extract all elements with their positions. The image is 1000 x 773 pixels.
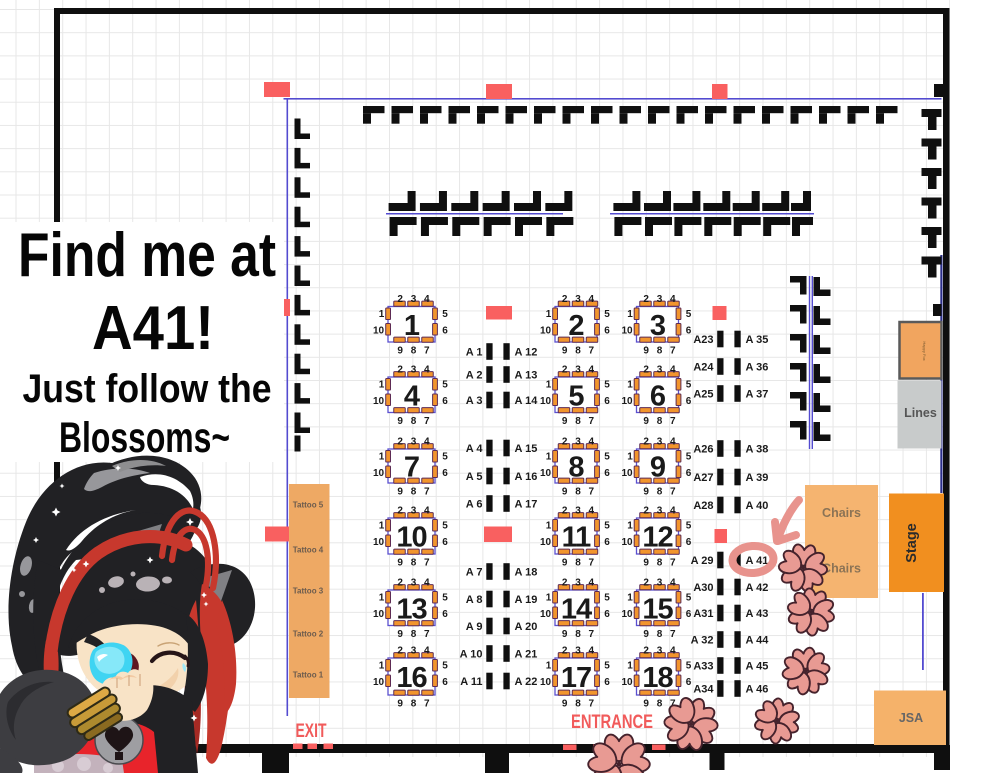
svg-text:9: 9 <box>643 416 649 427</box>
svg-text:A24: A24 <box>693 362 714 374</box>
svg-text:8: 8 <box>411 558 417 569</box>
svg-text:6: 6 <box>442 537 448 548</box>
svg-text:5: 5 <box>604 521 610 532</box>
svg-text:A25: A25 <box>693 389 713 401</box>
svg-text:2: 2 <box>562 578 568 589</box>
svg-text:2: 2 <box>562 506 568 517</box>
svg-text:4: 4 <box>424 506 430 517</box>
svg-text:8: 8 <box>575 629 581 640</box>
svg-text:7: 7 <box>589 699 595 710</box>
svg-text:2: 2 <box>643 506 649 517</box>
svg-text:3: 3 <box>575 578 581 589</box>
svg-text:4: 4 <box>589 506 595 517</box>
svg-text:1: 1 <box>546 593 552 604</box>
svg-text:4: 4 <box>670 506 676 517</box>
svg-text:10: 10 <box>621 468 633 479</box>
svg-text:3: 3 <box>575 437 581 448</box>
svg-text:6: 6 <box>442 396 448 407</box>
svg-text:17: 17 <box>561 662 591 694</box>
svg-text:A31: A31 <box>693 608 713 620</box>
svg-text:A28: A28 <box>693 500 713 512</box>
svg-text:6: 6 <box>686 677 692 688</box>
svg-text:A 2: A 2 <box>466 370 483 382</box>
svg-text:10: 10 <box>396 522 426 554</box>
svg-text:A 5: A 5 <box>466 471 483 483</box>
svg-text:9: 9 <box>397 487 403 498</box>
svg-text:3: 3 <box>657 365 663 376</box>
svg-text:1: 1 <box>379 661 385 672</box>
svg-text:2: 2 <box>643 578 649 589</box>
svg-text:4: 4 <box>424 578 430 589</box>
svg-text:7: 7 <box>670 487 676 498</box>
svg-text:8: 8 <box>411 416 417 427</box>
svg-text:10: 10 <box>621 326 633 337</box>
svg-text:ENTRANCE: ENTRANCE <box>571 712 653 733</box>
svg-text:1: 1 <box>546 309 552 320</box>
svg-text:2: 2 <box>397 578 403 589</box>
svg-text:3: 3 <box>575 365 581 376</box>
svg-text:10: 10 <box>373 609 385 620</box>
svg-text:3: 3 <box>657 506 663 517</box>
svg-text:3: 3 <box>411 506 417 517</box>
svg-text:1: 1 <box>627 593 633 604</box>
svg-text:Tattoo 1: Tattoo 1 <box>293 671 324 680</box>
svg-text:A23: A23 <box>693 334 713 346</box>
svg-text:1: 1 <box>379 309 385 320</box>
svg-text:10: 10 <box>373 326 385 337</box>
svg-text:11: 11 <box>562 522 592 554</box>
svg-text:1: 1 <box>379 380 385 391</box>
svg-text:2: 2 <box>397 646 403 657</box>
svg-text:2: 2 <box>568 310 583 342</box>
svg-text:9: 9 <box>643 699 649 710</box>
svg-text:Stage: Stage <box>904 523 920 563</box>
svg-text:3: 3 <box>575 646 581 657</box>
svg-text:A 36: A 36 <box>746 362 769 374</box>
svg-text:A 41: A 41 <box>746 555 769 567</box>
svg-text:10: 10 <box>621 677 633 688</box>
svg-text:A 22: A 22 <box>515 676 538 688</box>
svg-text:10: 10 <box>621 609 633 620</box>
svg-text:Just follow the: Just follow the <box>23 367 272 411</box>
svg-text:1: 1 <box>546 661 552 672</box>
svg-text:3: 3 <box>411 578 417 589</box>
svg-text:8: 8 <box>575 558 581 569</box>
svg-text:A 29: A 29 <box>691 555 714 567</box>
svg-text:8: 8 <box>657 346 663 357</box>
svg-text:3: 3 <box>657 578 663 589</box>
svg-text:1: 1 <box>627 380 633 391</box>
svg-text:6: 6 <box>604 468 610 479</box>
svg-text:9: 9 <box>562 416 568 427</box>
svg-text:10: 10 <box>373 677 385 688</box>
svg-text:3: 3 <box>411 365 417 376</box>
svg-text:8: 8 <box>657 487 663 498</box>
svg-text:4: 4 <box>589 578 595 589</box>
svg-text:1: 1 <box>379 521 385 532</box>
svg-text:9: 9 <box>397 629 403 640</box>
svg-text:10: 10 <box>540 326 552 337</box>
svg-text:3: 3 <box>411 437 417 448</box>
svg-text:A 32: A 32 <box>691 635 714 647</box>
svg-text:7: 7 <box>424 629 430 640</box>
svg-text:5: 5 <box>686 309 692 320</box>
svg-text:A 7: A 7 <box>466 567 483 579</box>
svg-text:1: 1 <box>627 521 633 532</box>
svg-text:A 1: A 1 <box>466 347 483 359</box>
svg-text:5: 5 <box>442 380 448 391</box>
svg-text:2: 2 <box>397 506 403 517</box>
svg-text:2: 2 <box>562 437 568 448</box>
svg-text:9: 9 <box>397 416 403 427</box>
svg-text:5: 5 <box>568 380 584 412</box>
svg-text:14: 14 <box>561 593 592 625</box>
svg-text:7: 7 <box>424 416 430 427</box>
svg-text:8: 8 <box>411 487 417 498</box>
svg-text:Tattoo 5: Tattoo 5 <box>293 501 324 510</box>
svg-text:10: 10 <box>621 537 633 548</box>
svg-text:10: 10 <box>540 609 552 620</box>
svg-text:Tattoo 3: Tattoo 3 <box>293 587 324 596</box>
svg-text:12: 12 <box>642 522 672 554</box>
svg-text:7: 7 <box>404 452 419 484</box>
svg-text:4: 4 <box>424 437 430 448</box>
svg-text:5: 5 <box>442 452 448 463</box>
svg-text:7: 7 <box>424 487 430 498</box>
svg-text:A 14: A 14 <box>515 395 539 407</box>
svg-text:4: 4 <box>670 294 676 305</box>
svg-text:9: 9 <box>397 558 403 569</box>
svg-text:A 39: A 39 <box>746 472 769 484</box>
svg-text:4: 4 <box>589 294 595 305</box>
svg-text:8: 8 <box>411 699 417 710</box>
svg-text:5: 5 <box>442 593 448 604</box>
svg-text:2: 2 <box>562 294 568 305</box>
svg-text:4: 4 <box>670 578 676 589</box>
svg-text:9: 9 <box>643 558 649 569</box>
svg-text:6: 6 <box>686 326 692 337</box>
svg-text:5: 5 <box>604 661 610 672</box>
svg-text:8: 8 <box>411 629 417 640</box>
svg-text:A 45: A 45 <box>746 661 769 673</box>
svg-text:18: 18 <box>642 662 673 694</box>
svg-text:1: 1 <box>627 452 633 463</box>
svg-text:4: 4 <box>670 365 676 376</box>
svg-text:5: 5 <box>686 593 692 604</box>
svg-text:10: 10 <box>540 537 552 548</box>
svg-text:6: 6 <box>442 468 448 479</box>
svg-text:A 44: A 44 <box>746 635 770 647</box>
svg-text:3: 3 <box>657 294 663 305</box>
svg-text:1: 1 <box>546 380 552 391</box>
svg-text:1: 1 <box>546 521 552 532</box>
svg-text:6: 6 <box>686 468 692 479</box>
svg-text:8: 8 <box>657 416 663 427</box>
svg-text:4: 4 <box>424 646 430 657</box>
svg-text:4: 4 <box>589 437 595 448</box>
svg-text:10: 10 <box>373 537 385 548</box>
svg-text:8: 8 <box>575 416 581 427</box>
svg-text:A 18: A 18 <box>515 567 538 579</box>
svg-text:2: 2 <box>643 646 649 657</box>
svg-text:A 38: A 38 <box>746 444 769 456</box>
svg-text:3: 3 <box>411 646 417 657</box>
svg-text:6: 6 <box>650 380 666 412</box>
svg-text:A 42: A 42 <box>746 582 769 594</box>
svg-text:7: 7 <box>424 558 430 569</box>
svg-text:8: 8 <box>657 558 663 569</box>
svg-text:A 35: A 35 <box>746 334 769 346</box>
svg-text:4: 4 <box>589 365 595 376</box>
svg-text:A 13: A 13 <box>515 370 538 382</box>
svg-text:5: 5 <box>604 380 610 391</box>
svg-text:7: 7 <box>670 416 676 427</box>
svg-text:A 3: A 3 <box>466 395 483 407</box>
svg-text:9: 9 <box>643 487 649 498</box>
svg-text:16: 16 <box>396 662 427 694</box>
svg-text:A 8: A 8 <box>466 594 483 606</box>
svg-text:1: 1 <box>404 310 420 342</box>
svg-text:5: 5 <box>686 380 692 391</box>
svg-text:6: 6 <box>442 609 448 620</box>
svg-text:A27: A27 <box>693 472 713 484</box>
svg-text:9: 9 <box>562 629 568 640</box>
svg-text:1: 1 <box>546 452 552 463</box>
svg-text:JSA: JSA <box>899 711 923 725</box>
svg-text:13: 13 <box>396 593 427 625</box>
svg-text:A 46: A 46 <box>746 684 769 696</box>
svg-text:9: 9 <box>397 699 403 710</box>
svg-text:8: 8 <box>568 452 584 484</box>
svg-text:A 15: A 15 <box>515 443 538 455</box>
svg-text:A 20: A 20 <box>515 621 538 633</box>
svg-text:Find me at: Find me at <box>18 221 276 290</box>
svg-text:3: 3 <box>657 437 663 448</box>
svg-text:Chairs: Chairs <box>822 506 861 520</box>
svg-text:3: 3 <box>411 294 417 305</box>
svg-text:A 9: A 9 <box>466 621 483 633</box>
svg-text:3: 3 <box>650 310 666 342</box>
svg-text:A 16: A 16 <box>515 471 538 483</box>
svg-text:A 12: A 12 <box>515 347 538 359</box>
svg-text:9: 9 <box>397 346 403 357</box>
svg-text:9: 9 <box>562 487 568 498</box>
svg-text:7: 7 <box>424 699 430 710</box>
svg-text:7: 7 <box>589 558 595 569</box>
svg-text:A33: A33 <box>693 661 713 673</box>
svg-text:4: 4 <box>589 646 595 657</box>
svg-text:A 37: A 37 <box>746 389 769 401</box>
svg-text:9: 9 <box>562 346 568 357</box>
svg-text:Blossoms~: Blossoms~ <box>59 414 230 462</box>
svg-text:10: 10 <box>373 468 385 479</box>
svg-text:2: 2 <box>643 437 649 448</box>
svg-text:6: 6 <box>686 609 692 620</box>
svg-text:1: 1 <box>379 452 385 463</box>
svg-text:5: 5 <box>442 661 448 672</box>
svg-text:9: 9 <box>643 346 649 357</box>
svg-text:8: 8 <box>657 699 663 710</box>
svg-text:EXIT: EXIT <box>296 721 327 742</box>
svg-text:1: 1 <box>627 661 633 672</box>
svg-text:8: 8 <box>657 629 663 640</box>
svg-text:5: 5 <box>604 452 610 463</box>
svg-text:10: 10 <box>540 396 552 407</box>
svg-text:6: 6 <box>686 396 692 407</box>
svg-text:A34: A34 <box>693 684 714 696</box>
svg-text:A 17: A 17 <box>515 499 538 511</box>
svg-text:7: 7 <box>670 558 676 569</box>
svg-text:A 11: A 11 <box>460 676 482 688</box>
svg-text:8: 8 <box>411 346 417 357</box>
svg-text:2: 2 <box>643 365 649 376</box>
svg-text:5: 5 <box>686 452 692 463</box>
svg-text:1: 1 <box>379 593 385 604</box>
svg-text:7: 7 <box>670 346 676 357</box>
svg-text:2: 2 <box>562 365 568 376</box>
svg-text:9: 9 <box>562 699 568 710</box>
svg-text:A41!: A41! <box>92 294 214 363</box>
svg-text:15: 15 <box>642 593 673 625</box>
svg-text:7: 7 <box>424 346 430 357</box>
svg-text:6: 6 <box>442 677 448 688</box>
svg-text:A 10: A 10 <box>460 649 483 661</box>
svg-text:5: 5 <box>604 309 610 320</box>
svg-text:4: 4 <box>670 437 676 448</box>
svg-text:9: 9 <box>562 558 568 569</box>
svg-text:5: 5 <box>442 309 448 320</box>
svg-text:A30: A30 <box>693 582 713 594</box>
svg-text:6: 6 <box>604 326 610 337</box>
svg-text:7: 7 <box>589 629 595 640</box>
svg-text:5: 5 <box>442 521 448 532</box>
svg-text:3: 3 <box>575 506 581 517</box>
svg-text:8: 8 <box>575 487 581 498</box>
svg-text:A26: A26 <box>693 444 713 456</box>
svg-text:9: 9 <box>643 629 649 640</box>
svg-text:3: 3 <box>575 294 581 305</box>
svg-text:9: 9 <box>650 452 666 484</box>
svg-text:5: 5 <box>686 661 692 672</box>
svg-text:Lines: Lines <box>904 406 937 420</box>
svg-text:6: 6 <box>604 677 610 688</box>
svg-text:4: 4 <box>670 646 676 657</box>
svg-text:8: 8 <box>575 699 581 710</box>
svg-text:3: 3 <box>657 646 663 657</box>
svg-text:A 43: A 43 <box>746 608 769 620</box>
svg-text:7: 7 <box>589 346 595 357</box>
svg-text:A 4: A 4 <box>466 443 484 455</box>
svg-text:A 21: A 21 <box>515 649 538 661</box>
svg-text:2: 2 <box>562 646 568 657</box>
svg-text:6: 6 <box>442 326 448 337</box>
svg-text:7: 7 <box>589 487 595 498</box>
svg-text:Tattoo 4: Tattoo 4 <box>293 546 324 555</box>
svg-text:2: 2 <box>397 365 403 376</box>
svg-text:2: 2 <box>397 294 403 305</box>
svg-text:1: 1 <box>627 309 633 320</box>
svg-text:6: 6 <box>686 537 692 548</box>
svg-text:A 19: A 19 <box>515 594 538 606</box>
svg-text:5: 5 <box>604 593 610 604</box>
svg-text:5: 5 <box>686 521 692 532</box>
svg-text:6: 6 <box>604 396 610 407</box>
svg-text:2: 2 <box>643 294 649 305</box>
svg-text:7: 7 <box>589 416 595 427</box>
svg-text:A 40: A 40 <box>746 500 769 512</box>
svg-text:10: 10 <box>540 468 552 479</box>
svg-text:Tattoo 2: Tattoo 2 <box>293 630 324 639</box>
svg-text:7: 7 <box>670 629 676 640</box>
svg-text:4: 4 <box>424 365 430 376</box>
svg-text:10: 10 <box>540 677 552 688</box>
svg-text:10: 10 <box>621 396 633 407</box>
svg-text:6: 6 <box>604 537 610 548</box>
svg-text:4: 4 <box>424 294 430 305</box>
svg-text:8: 8 <box>575 346 581 357</box>
svg-text:6: 6 <box>604 609 610 620</box>
svg-text:A 6: A 6 <box>466 499 483 511</box>
svg-text:Happy Fox: Happy Fox <box>922 341 927 360</box>
svg-text:4: 4 <box>404 380 420 412</box>
svg-text:10: 10 <box>373 396 385 407</box>
svg-text:2: 2 <box>397 437 403 448</box>
